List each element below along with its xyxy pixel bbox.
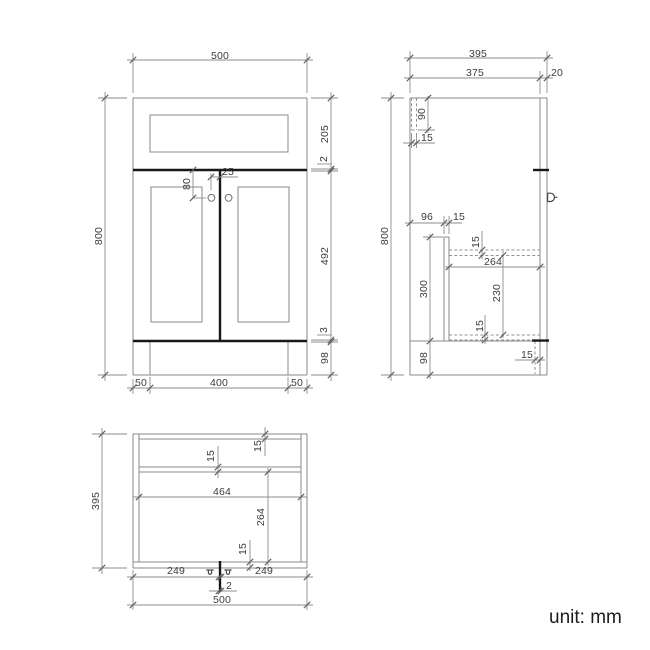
dim-side-shelf-depth: 264 — [484, 256, 502, 268]
dim-front-inset-left: 50 — [135, 377, 147, 389]
side-dimension-lines — [381, 51, 553, 381]
side-view — [381, 51, 557, 381]
dim-front-overall-width: 500 — [211, 50, 229, 62]
dim-front-plinth-height: 98 — [319, 352, 331, 364]
plan-carcass-lines — [133, 434, 307, 568]
unit-label: unit: mm — [549, 607, 622, 629]
dim-side-plinth-recess: 15 — [521, 349, 533, 361]
front-dimension-lines — [98, 53, 338, 394]
plan-view — [92, 427, 313, 610]
dim-plan-right-door-width: 249 — [255, 565, 273, 577]
plan-dimension-lines — [92, 427, 313, 610]
dim-plan-front-rail-thickness: 15 — [237, 543, 249, 555]
dim-front-gap-top: 2 — [318, 156, 330, 162]
front-right-knob-icon — [225, 194, 232, 201]
dim-plan-inner-depth: 264 — [255, 508, 267, 526]
plan-right-knob-icon — [224, 570, 231, 574]
front-view — [98, 53, 338, 394]
dim-plan-overall-width: 500 — [213, 594, 231, 606]
dim-side-partition-setback: 96 — [421, 211, 433, 223]
dim-side-plinth-height: 98 — [418, 352, 430, 364]
dim-plan-overall-depth: 395 — [90, 492, 102, 510]
dim-plan-left-door-width: 249 — [167, 565, 185, 577]
dim-front-inset-right: 50 — [291, 377, 303, 389]
dim-side-back-rail-thickness: 15 — [421, 132, 433, 144]
dim-side-shelf-clearance: 230 — [491, 284, 503, 302]
dim-side-partition-height: 300 — [418, 280, 430, 298]
dim-front-plinth-width: 400 — [210, 377, 228, 389]
dim-side-shelf-thickness: 15 — [470, 236, 482, 248]
dim-front-knob-drop: 80 — [181, 178, 193, 190]
dim-plan-inner-width: 464 — [213, 486, 231, 498]
dim-plan-mid-rail-thickness: 15 — [205, 450, 217, 462]
side-knob-icon — [548, 193, 558, 201]
drawing-linework — [0, 0, 650, 650]
dim-front-knob-offset: 25 — [222, 166, 234, 178]
dim-front-overall-height: 800 — [93, 227, 105, 245]
dim-side-bottom-shelf-thickness: 15 — [474, 320, 486, 332]
front-door-gap-lines — [133, 170, 307, 341]
dim-side-overall-depth: 395 — [469, 48, 487, 60]
dim-side-back-rail-height: 90 — [416, 108, 428, 120]
dim-side-partition-thickness: 15 — [453, 211, 465, 223]
dim-front-door-height: 492 — [319, 247, 331, 265]
dim-front-gap-bottom: 3 — [318, 327, 330, 333]
dim-side-door-thickness: 20 — [551, 67, 563, 79]
dim-plan-back-rail-thickness: 15 — [252, 440, 264, 452]
front-left-knob-icon — [208, 194, 215, 201]
side-dimension-ticks — [388, 55, 550, 378]
dim-side-carcass-depth: 375 — [466, 67, 484, 79]
cabinet-dimension-drawing: 500 800 205 2 492 3 98 50 400 50 80 25 3… — [0, 0, 650, 650]
dim-front-drawer-height: 205 — [319, 125, 331, 143]
plan-left-knob-icon — [206, 570, 213, 574]
dim-plan-door-gap: 2 — [226, 580, 232, 592]
dim-side-overall-height: 800 — [379, 227, 391, 245]
